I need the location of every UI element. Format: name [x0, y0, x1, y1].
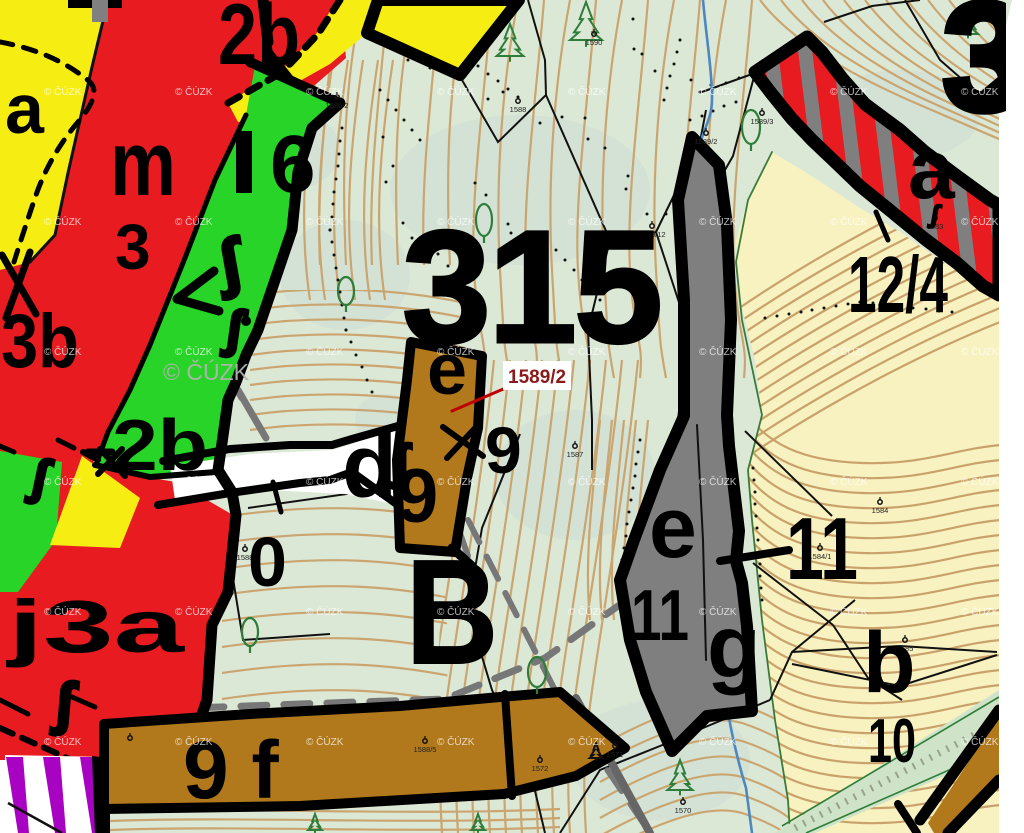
svg-text:a: a — [5, 70, 45, 148]
svg-text:© ČÚZK: © ČÚZK — [830, 605, 868, 618]
svg-text:© ČÚZK: © ČÚZK — [44, 605, 82, 618]
svg-text:© ČÚZK: © ČÚZK — [961, 605, 999, 618]
svg-text:j3a: j3a — [5, 585, 186, 668]
svg-text:11: 11 — [786, 499, 858, 598]
svg-text:© ČÚZK: © ČÚZK — [961, 85, 999, 98]
svg-text:e: e — [649, 480, 697, 576]
svg-text:© ČÚZK: © ČÚZK — [437, 735, 475, 748]
svg-text:1588/5: 1588/5 — [414, 745, 437, 754]
svg-text:© ČÚZK: © ČÚZK — [44, 475, 82, 488]
svg-text:6: 6 — [270, 119, 316, 210]
svg-text:1572: 1572 — [532, 764, 549, 773]
svg-text:© ČÚZK: © ČÚZK — [306, 475, 344, 488]
svg-text:© ČÚZK: © ČÚZK — [175, 215, 213, 228]
svg-text:© ČÚZK: © ČÚZK — [961, 735, 999, 748]
svg-text:© ČÚZK: © ČÚZK — [568, 215, 606, 228]
svg-text:© ČÚZK: © ČÚZK — [175, 475, 213, 488]
svg-text:© ČÚZK: © ČÚZK — [830, 215, 868, 228]
svg-text:© ČÚZK: © ČÚZK — [437, 85, 475, 98]
svg-text:© ČÚZK: © ČÚZK — [830, 475, 868, 488]
svg-text:2b: 2b — [112, 406, 208, 486]
svg-text:a: a — [908, 122, 956, 216]
svg-text:© ČÚZK: © ČÚZK — [437, 345, 475, 358]
svg-text:© ČÚZK: © ČÚZK — [830, 85, 868, 98]
svg-text:© ČÚZK: © ČÚZK — [163, 358, 250, 385]
svg-text:2b: 2b — [218, 0, 300, 83]
svg-text:1570: 1570 — [675, 806, 692, 815]
svg-text:9: 9 — [485, 413, 522, 487]
svg-text:1590: 1590 — [586, 38, 603, 47]
svg-text:© ČÚZK: © ČÚZK — [306, 735, 344, 748]
svg-text:© ČÚZK: © ČÚZK — [961, 215, 999, 228]
svg-text:1589/3: 1589/3 — [751, 117, 774, 126]
svg-text:© ČÚZK: © ČÚZK — [830, 735, 868, 748]
svg-text:© ČÚZK: © ČÚZK — [961, 475, 999, 488]
svg-text:© ČÚZK: © ČÚZK — [175, 735, 213, 748]
svg-text:12/4: 12/4 — [848, 240, 948, 329]
svg-text:3: 3 — [115, 211, 151, 283]
svg-text:9: 9 — [396, 454, 438, 539]
svg-text:1586/2: 1586/2 — [326, 101, 349, 110]
svg-text:1589/2: 1589/2 — [695, 137, 718, 146]
svg-text:© ČÚZK: © ČÚZK — [44, 345, 82, 358]
svg-text:© ČÚZK: © ČÚZK — [306, 85, 344, 98]
svg-text:© ČÚZK: © ČÚZK — [306, 345, 344, 358]
svg-text:© ČÚZK: © ČÚZK — [568, 85, 606, 98]
svg-text:10: 10 — [868, 707, 916, 776]
svg-text:1584: 1584 — [872, 506, 889, 515]
svg-text:© ČÚZK: © ČÚZK — [699, 345, 737, 358]
svg-text:b: b — [863, 615, 916, 711]
svg-text:© ČÚZK: © ČÚZK — [175, 605, 213, 618]
svg-text:d: d — [342, 417, 397, 517]
svg-text:e: e — [427, 330, 467, 410]
svg-text:© ČÚZK: © ČÚZK — [306, 215, 344, 228]
svg-text:© ČÚZK: © ČÚZK — [44, 215, 82, 228]
svg-text:© ČÚZK: © ČÚZK — [44, 85, 82, 98]
svg-text:© ČÚZK: © ČÚZK — [568, 475, 606, 488]
svg-text:3b: 3b — [1, 299, 79, 384]
svg-text:© ČÚZK: © ČÚZK — [961, 345, 999, 358]
svg-text:m: m — [110, 113, 176, 215]
svg-text:© ČÚZK: © ČÚZK — [437, 475, 475, 488]
svg-text:© ČÚZK: © ČÚZK — [699, 605, 737, 618]
svg-text:© ČÚZK: © ČÚZK — [568, 605, 606, 618]
svg-text:© ČÚZK: © ČÚZK — [830, 345, 868, 358]
svg-text:© ČÚZK: © ČÚZK — [175, 85, 213, 98]
svg-text:1589/2: 1589/2 — [508, 367, 566, 388]
svg-text:1571: 1571 — [607, 750, 624, 759]
svg-text:© ČÚZK: © ČÚZK — [699, 475, 737, 488]
svg-text:© ČÚZK: © ČÚZK — [699, 735, 737, 748]
svg-text:© ČÚZK: © ČÚZK — [44, 735, 82, 748]
svg-text:© ČÚZK: © ČÚZK — [568, 345, 606, 358]
svg-text:11: 11 — [631, 576, 689, 656]
svg-text:© ČÚZK: © ČÚZK — [568, 735, 606, 748]
svg-text:© ČÚZK: © ČÚZK — [437, 215, 475, 228]
svg-text:1588: 1588 — [510, 105, 527, 114]
svg-text:© ČÚZK: © ČÚZK — [175, 345, 213, 358]
svg-text:© ČÚZK: © ČÚZK — [699, 215, 737, 228]
svg-text:© ČÚZK: © ČÚZK — [437, 605, 475, 618]
svg-text:© ČÚZK: © ČÚZK — [699, 85, 737, 98]
svg-text:0: 0 — [248, 523, 287, 601]
svg-text:1587: 1587 — [567, 450, 584, 459]
svg-text:© ČÚZK: © ČÚZK — [306, 605, 344, 618]
